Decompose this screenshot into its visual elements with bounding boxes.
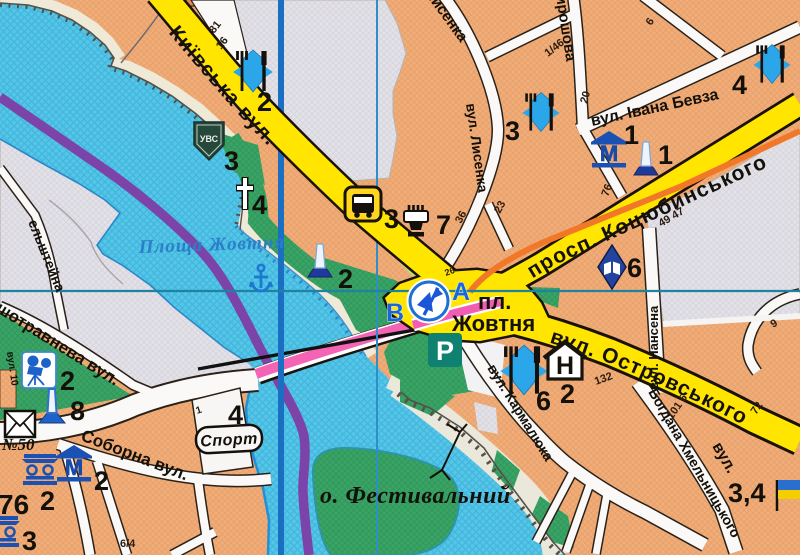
svg-text:2: 2: [338, 264, 353, 294]
svg-text:УВС: УВС: [200, 134, 219, 144]
svg-text:2: 2: [560, 379, 575, 409]
svg-text:2: 2: [257, 87, 272, 117]
svg-text:3: 3: [505, 116, 520, 146]
svg-text:3,4: 3,4: [728, 478, 766, 508]
svg-text:Жовтня: Жовтня: [451, 311, 535, 336]
svg-text:3: 3: [384, 204, 399, 234]
svg-text:2: 2: [60, 366, 75, 396]
svg-text:3: 3: [224, 146, 239, 176]
svg-text:В: В: [386, 299, 404, 327]
svg-text:3: 3: [22, 526, 37, 555]
svg-text:1: 1: [624, 120, 639, 150]
svg-text:1: 1: [658, 140, 673, 170]
svg-text:P: P: [436, 336, 454, 366]
svg-text:6/4: 6/4: [120, 538, 136, 550]
svg-text:8: 8: [70, 396, 85, 426]
svg-text:о. Фестивальний: о. Фестивальний: [320, 483, 511, 509]
svg-text:Спорт: Спорт: [200, 431, 258, 451]
svg-text:4: 4: [252, 190, 267, 220]
svg-text:4: 4: [228, 400, 243, 430]
svg-text:6: 6: [536, 386, 551, 416]
svg-text:Н: Н: [556, 352, 574, 380]
svg-text:А: А: [452, 278, 470, 306]
svg-text:вул. Нансена: вул. Нансена: [646, 305, 661, 390]
svg-text:4: 4: [732, 70, 747, 100]
svg-text:6: 6: [627, 253, 642, 283]
svg-text:2: 2: [40, 486, 55, 516]
svg-text:76: 76: [0, 489, 29, 520]
svg-text:7: 7: [436, 210, 451, 240]
svg-text:2: 2: [94, 466, 109, 496]
